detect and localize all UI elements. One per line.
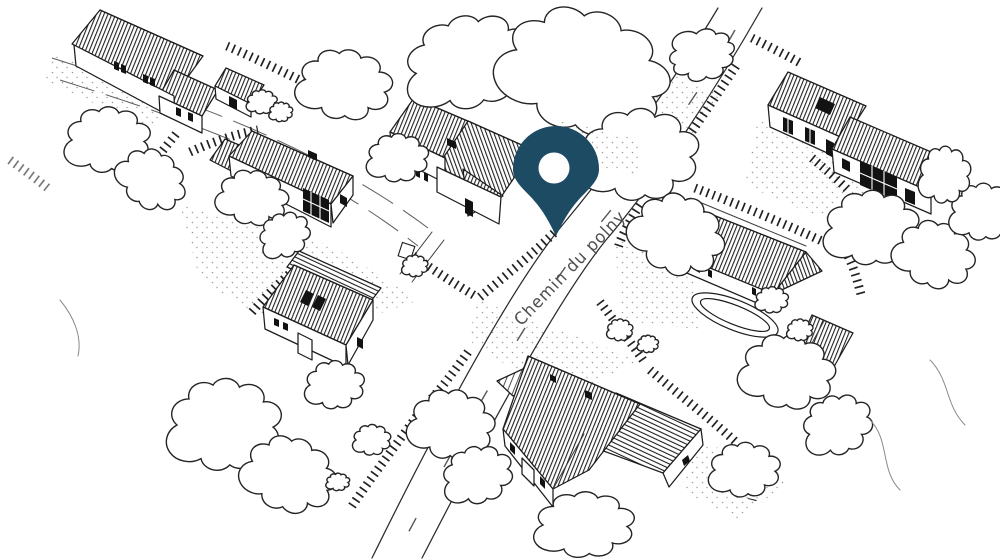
tree (292, 43, 397, 126)
bush (352, 424, 390, 455)
village-map: Chemin du polny (0, 0, 1000, 560)
street-name-label: Chemin du polny (510, 207, 630, 330)
tree (304, 361, 364, 409)
bush (637, 335, 659, 352)
location-pin-icon[interactable] (513, 126, 599, 236)
village-map-illustration: Chemin du polny (0, 0, 1000, 560)
